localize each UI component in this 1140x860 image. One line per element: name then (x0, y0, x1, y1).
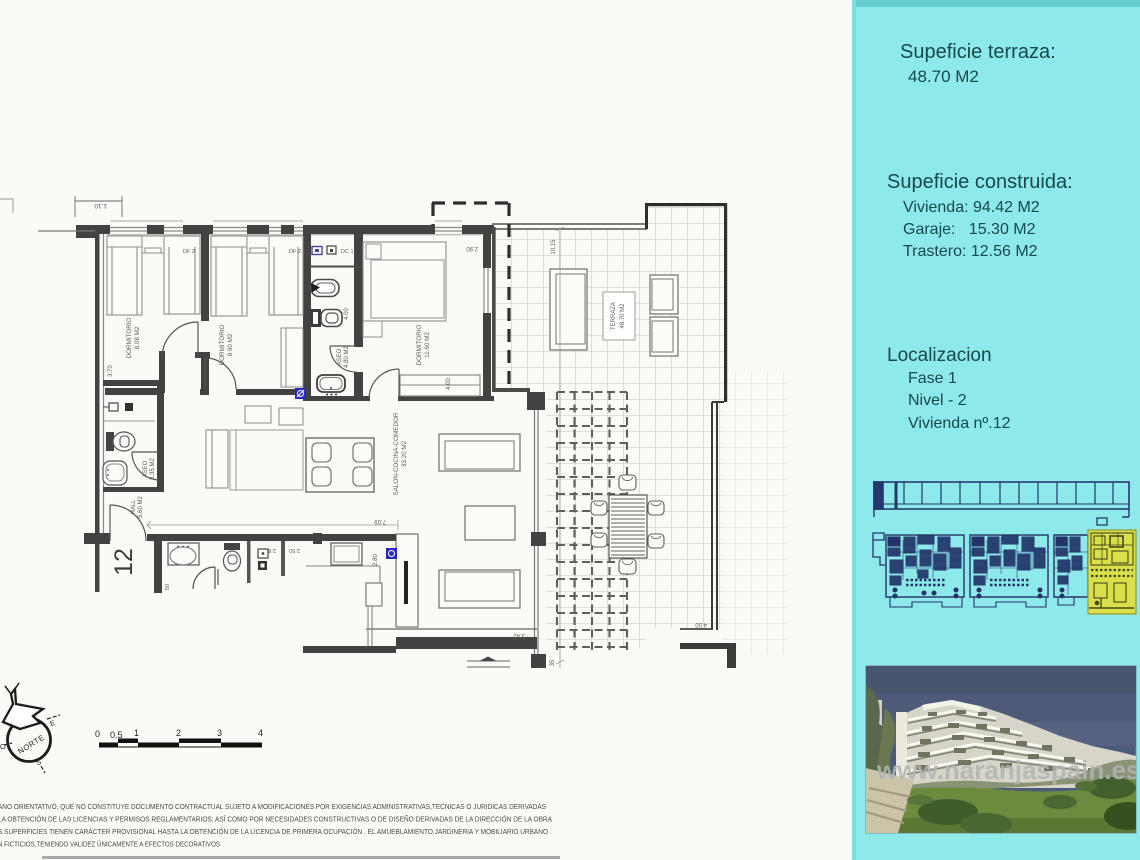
svg-text:Supeficie terraza:: Supeficie terraza: (900, 41, 1056, 63)
svg-text:5.60 M2: 5.60 M2 (138, 496, 144, 518)
svg-text:50: 50 (165, 584, 171, 590)
svg-text:Localizacion: Localizacion (887, 345, 992, 366)
svg-text:3.70: 3.70 (108, 365, 114, 377)
svg-text:4.80 M2: 4.80 M2 (344, 346, 350, 368)
svg-text:Fase 1: Fase 1 (908, 370, 957, 387)
svg-text:O: O (0, 742, 6, 751)
svg-text:SALON-COCINA-COMEDOR: SALON-COCINA-COMEDOR (393, 412, 400, 495)
svg-text:7.09: 7.09 (374, 518, 386, 524)
svg-text:33.20 M2: 33.20 M2 (401, 440, 408, 467)
svg-text:www.naranjaspain.es: www.naranjaspain.es (876, 755, 1140, 785)
svg-text:2.80: 2.80 (373, 554, 379, 566)
svg-text:ASEO: ASEO (337, 348, 343, 365)
svg-text:1: 1 (134, 728, 139, 738)
svg-text:DF 2: DF 2 (183, 249, 195, 255)
svg-text:12: 12 (110, 548, 138, 576)
svg-text:Vivienda nº.12: Vivienda nº.12 (908, 415, 1011, 432)
svg-text:DORMITORIO: DORMITORIO (126, 317, 133, 358)
svg-text:3.42: 3.42 (513, 632, 525, 638)
svg-text:9.60 M2: 9.60 M2 (227, 333, 234, 356)
svg-text:3.35 M2: 3.35 M2 (150, 458, 156, 480)
svg-text:8.08 M2: 8.08 M2 (134, 326, 141, 349)
svg-text:S SUPERFICIES TIENEN CARÁCTER: S SUPERFICIES TIENEN CARÁCTER PROVISIONA… (0, 827, 548, 836)
svg-text:11.60 M2: 11.60 M2 (424, 332, 431, 358)
svg-text:35: 35 (550, 659, 556, 666)
svg-text:HALL: HALL (131, 499, 137, 515)
svg-text:2: 2 (176, 728, 181, 738)
svg-text:1.10: 1.10 (94, 202, 107, 209)
svg-text:DORMITORIO: DORMITORIO (219, 324, 226, 365)
svg-text:N FICTICIOS,TENIENDO VALIDEZ Ú: N FICTICIOS,TENIENDO VALIDEZ ÚNICAMENTE … (0, 840, 220, 849)
svg-text:TERRAZA: TERRAZA (611, 302, 617, 330)
svg-text:2.8: 2.8 (268, 547, 276, 553)
svg-text:48.70 M2: 48.70 M2 (620, 303, 626, 329)
svg-text:2.90: 2.90 (466, 245, 478, 251)
svg-text:Trastero: 12.56 M2: Trastero: 12.56 M2 (903, 243, 1038, 260)
svg-text:4: 4 (258, 728, 263, 738)
svg-text:Garaje: 15.30 M2: Garaje: 15.30 M2 (903, 221, 1036, 238)
svg-text:0: 0 (95, 729, 100, 739)
svg-text:3: 3 (217, 728, 222, 738)
svg-text:2.50: 2.50 (289, 547, 300, 553)
svg-text:Nivel - 2: Nivel - 2 (908, 392, 967, 409)
svg-text:LA OBTENCIÓN DE LAS LICENCIAS: LA OBTENCIÓN DE LAS LICENCIAS Y PERMISOS… (0, 815, 552, 824)
svg-text:DC 1: DC 1 (341, 249, 354, 255)
svg-text:4.00: 4.00 (344, 308, 350, 320)
svg-text:DORMITORIO: DORMITORIO (416, 324, 423, 365)
svg-text:48.70 M2: 48.70 M2 (908, 67, 979, 86)
svg-text:4.00: 4.00 (695, 621, 707, 627)
svg-text:Vivienda: 94.42 M2: Vivienda: 94.42 M2 (903, 199, 1040, 216)
svg-text:DF 2: DF 2 (289, 249, 301, 255)
svg-text:10.15: 10.15 (551, 239, 557, 255)
svg-text:Supeficie construida:: Supeficie construida: (887, 171, 1073, 193)
svg-text:4.00: 4.00 (446, 378, 452, 390)
svg-text:ASEO: ASEO (143, 460, 149, 477)
svg-text:ANO ORIENTATIVO, QUE NO CONSTI: ANO ORIENTATIVO, QUE NO CONSTITUYE DOCUM… (0, 802, 546, 811)
